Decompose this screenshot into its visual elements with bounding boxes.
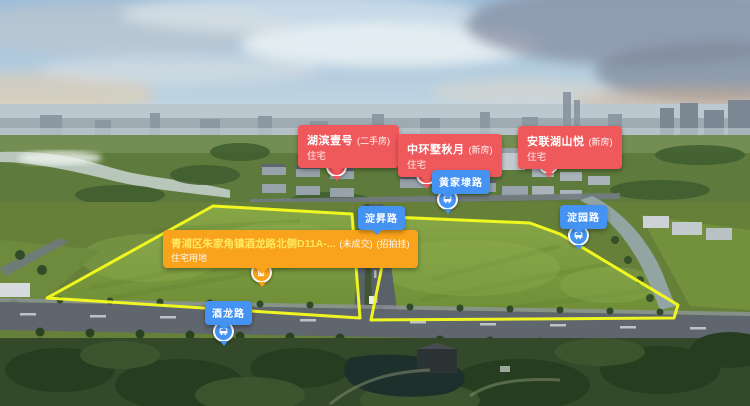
property-name: 中环墅秋月 xyxy=(407,144,465,156)
bubble-pointer xyxy=(372,230,382,235)
listing-type-tag: (新房) xyxy=(589,137,613,147)
road-name: 淀昇路 xyxy=(365,214,398,225)
property-name: 湖滨壹号 xyxy=(307,135,353,147)
land-category: 住宅用地 xyxy=(171,254,410,263)
bubble-pointer xyxy=(256,268,268,274)
road-name: 淀园路 xyxy=(567,213,600,224)
land-parcel-title: 青浦区朱家角镇酒龙路北侧D11A-... xyxy=(171,238,336,250)
road-name: 黄家埭路 xyxy=(439,178,483,189)
road-label-diansheng[interactable]: 淀昇路 xyxy=(358,206,405,230)
listing-type-tag: (二手房) xyxy=(357,136,390,146)
bubble-pointer xyxy=(574,229,584,234)
road-name: 酒龙路 xyxy=(212,309,245,320)
road-label-jiulong[interactable]: 酒龙路 xyxy=(205,301,252,325)
property-label-anlian[interactable]: 安联湖山悦(新房) 住宅 xyxy=(518,126,622,169)
bubble-pointer xyxy=(443,194,453,199)
bubble-pointer xyxy=(331,168,343,174)
aerial-map-view: 湖滨壹号(二手房) 住宅 中环墅秋月(新房) 住宅 安联湖山悦(新房) 住宅 青… xyxy=(0,0,750,406)
bubble-pointer xyxy=(543,169,555,175)
land-sale-method-tag: (招拍挂) xyxy=(377,239,410,249)
property-label-hubin[interactable]: 湖滨壹号(二手房) 住宅 xyxy=(298,125,399,168)
road-label-dianyuan[interactable]: 淀园路 xyxy=(560,205,607,229)
bubble-pointer xyxy=(219,325,229,330)
aerial-photo-background xyxy=(0,0,750,406)
property-name: 安联湖山悦 xyxy=(527,136,585,148)
property-category: 住宅 xyxy=(307,152,390,162)
listing-type-tag: (新房) xyxy=(469,145,493,155)
land-parcel-label[interactable]: 青浦区朱家角镇酒龙路北侧D11A-...(未成交)(招拍挂) 住宅用地 xyxy=(163,230,418,268)
land-status-tag: (未成交) xyxy=(340,239,373,249)
park xyxy=(0,332,750,406)
road-label-huangjiadai[interactable]: 黄家埭路 xyxy=(432,170,490,194)
property-category: 住宅 xyxy=(527,153,613,163)
